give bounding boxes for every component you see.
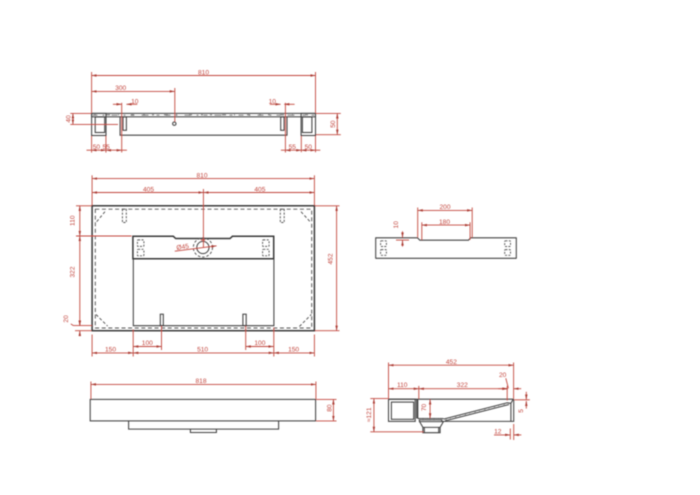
svg-text:150: 150 (105, 347, 116, 354)
svg-text:50: 50 (93, 144, 101, 151)
svg-text:110: 110 (69, 215, 76, 226)
svg-text:≈121: ≈121 (366, 407, 373, 422)
svg-text:100: 100 (142, 340, 153, 347)
svg-text:810: 810 (198, 69, 209, 76)
svg-text:50: 50 (305, 144, 313, 151)
svg-text:10: 10 (269, 99, 277, 106)
svg-text:10: 10 (131, 99, 139, 106)
svg-text:20: 20 (499, 372, 507, 379)
svg-text:405: 405 (254, 186, 265, 193)
svg-text:110: 110 (397, 382, 408, 389)
svg-text:40: 40 (66, 115, 73, 123)
svg-text:322: 322 (457, 382, 468, 389)
svg-text:810: 810 (196, 172, 207, 179)
svg-text:510: 510 (197, 347, 208, 354)
svg-text:50: 50 (330, 120, 337, 128)
svg-text:200: 200 (439, 204, 450, 211)
svg-text:Ø45: Ø45 (176, 243, 190, 252)
svg-text:405: 405 (143, 186, 154, 193)
svg-text:55: 55 (289, 144, 297, 151)
svg-text:452: 452 (327, 253, 334, 264)
svg-text:300: 300 (115, 85, 126, 92)
svg-text:150: 150 (288, 347, 299, 354)
svg-text:55: 55 (103, 144, 111, 151)
svg-text:20: 20 (63, 315, 70, 323)
svg-text:818: 818 (195, 378, 206, 385)
svg-text:322: 322 (69, 266, 76, 277)
svg-text:5: 5 (518, 409, 525, 413)
svg-text:100: 100 (254, 340, 265, 347)
svg-text:10: 10 (393, 221, 400, 229)
svg-text:12: 12 (494, 428, 502, 435)
svg-text:70: 70 (421, 404, 428, 412)
svg-text:180: 180 (439, 219, 450, 226)
svg-text:80: 80 (326, 404, 333, 412)
svg-text:452: 452 (446, 359, 457, 366)
